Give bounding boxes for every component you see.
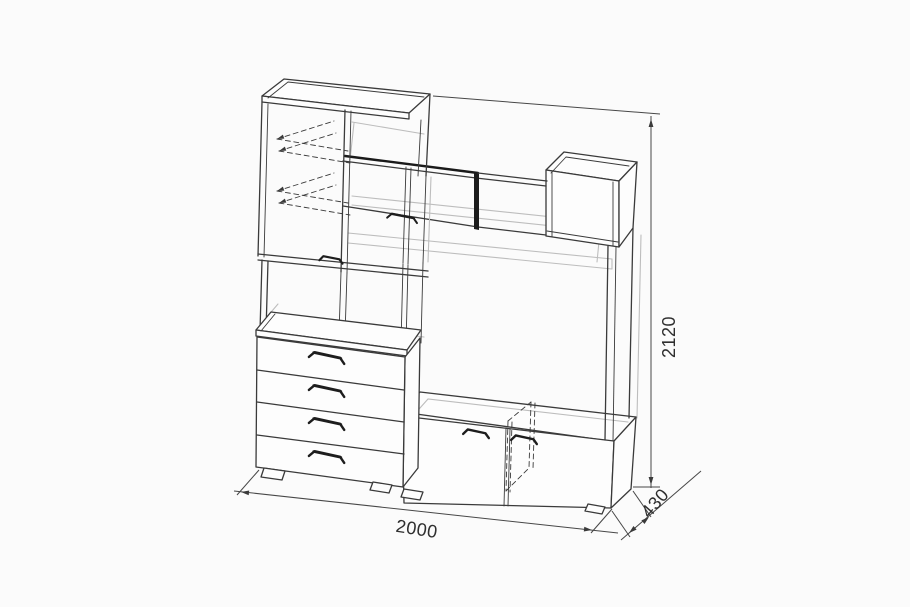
hidden-shelf-dashes-lower <box>276 173 350 215</box>
bridge-shelf <box>343 156 547 264</box>
width-arrow-left <box>241 490 249 496</box>
bridge-right-upright <box>423 176 426 263</box>
left-cabinet-right-edge-inner <box>347 111 351 273</box>
right-side-frame <box>605 228 633 441</box>
width-arrow-right <box>584 527 592 533</box>
cube-front-face <box>546 170 619 247</box>
frame-front-edge-1 <box>605 246 608 440</box>
wall-unit-technical-drawing: 2000 2120 430 <box>0 0 910 607</box>
cube-shelf <box>546 152 637 247</box>
height-extension-top <box>433 96 660 114</box>
left-cabinet-right-edge <box>341 110 345 272</box>
hidden-shelf-dashes-upper <box>276 121 350 163</box>
depth-dimension-label: 430 <box>637 485 673 522</box>
tv-cabinet <box>401 392 636 514</box>
width-dimension-label: 2000 <box>395 516 440 542</box>
top-compartment-back-edge <box>352 122 424 134</box>
bridge-top-back-edge <box>345 156 478 173</box>
frame-outer-edge <box>629 228 633 418</box>
left-cabinet-left-edge-inner <box>264 104 268 257</box>
bridge-dark-divider <box>474 173 479 230</box>
long-shelf-edge-2 <box>348 243 612 269</box>
drawer-chest <box>256 312 421 493</box>
top-compartment-right-edge <box>426 94 430 176</box>
height-arrow-top <box>649 119 654 127</box>
top-compartment-right-inner <box>418 120 421 176</box>
drawing-canvas: 2000 2120 430 <box>0 0 910 607</box>
left-cabinet-left-edge <box>258 102 262 256</box>
bridge-bottom-front-edge <box>343 206 546 235</box>
bridge-flap-handle <box>387 213 418 223</box>
bridge-top-front-edge <box>343 161 546 186</box>
height-dimension-label: 2120 <box>659 316 679 358</box>
lower-frame-far-right-upright <box>421 263 423 343</box>
height-arrow-bottom <box>649 477 654 485</box>
right-frame-back-edge <box>637 235 641 418</box>
frame-front-edge-2 <box>613 247 616 441</box>
